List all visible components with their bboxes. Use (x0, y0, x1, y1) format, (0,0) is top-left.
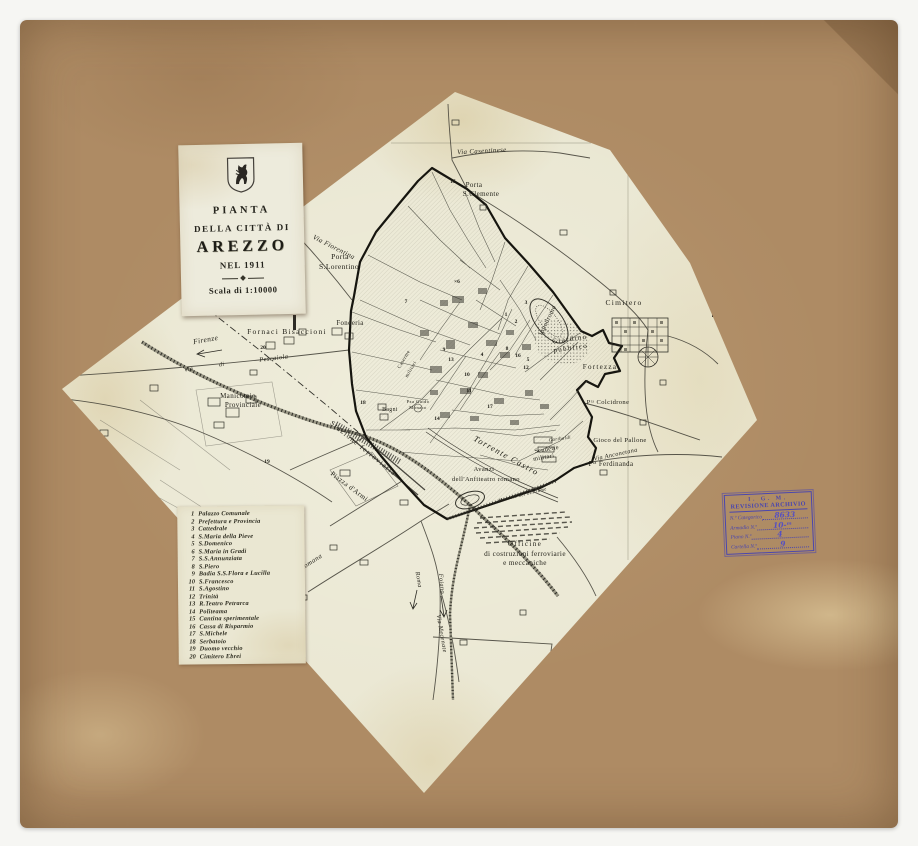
legend-item-number: 12 (182, 593, 195, 601)
legend-item-number: 6 (182, 548, 195, 556)
map-title-line1: PIANTA (213, 204, 271, 216)
map-marker-number: 14 (434, 416, 440, 422)
map-marker-number: 5 (527, 357, 530, 363)
legend-item-number: 8 (182, 563, 195, 571)
map-label: Pᵗᵃ Colcidrone (587, 399, 630, 406)
map-label: di costruzioni ferroviarie (484, 550, 566, 558)
stamp-field-value: 10-ᵐ (773, 520, 792, 530)
map-label: Officine (508, 540, 542, 548)
map-label: Bagni (382, 407, 398, 413)
coat-of-arms-shield (225, 157, 256, 194)
map-label: Porta (466, 181, 483, 189)
map-label: Via Casentinese (457, 147, 507, 157)
legend-item: 20Cimitero Ebrei (183, 652, 302, 661)
map-marker-number: 1 (505, 312, 508, 318)
map-marker-number: ×6 (454, 279, 460, 285)
map-marker-number: 15 (450, 179, 456, 185)
map-label: S.Lorentino (319, 262, 359, 271)
map-label: Fonderia (336, 320, 363, 327)
legend-item-number: 14 (182, 608, 195, 616)
divider-ornament (222, 276, 264, 281)
map-label: Pza Guido (407, 399, 430, 404)
map-label: Piazza d'Armi (329, 470, 370, 503)
legend-item-number: 5 (182, 540, 195, 548)
map-marker-number: 3 (525, 300, 528, 306)
legend-item-name: S.S.Annunziata (199, 555, 242, 563)
map-marker-number: 12 (523, 365, 529, 371)
legend-item-number: 10 (182, 578, 195, 586)
map-label: Gioco del Pallone (593, 437, 646, 444)
stamp-field-value: 4 (777, 530, 783, 539)
map-title-city: AREZZO (196, 237, 288, 257)
stamp-field-label: Piano N.º (730, 534, 751, 541)
map-label: Porta (331, 252, 349, 261)
legend-item-name: Prefettura e Provincia (198, 517, 260, 525)
legend-item-number: 17 (182, 630, 195, 638)
legend-item-number: 7 (182, 555, 195, 563)
archival-map-photo: Via CasentinesePortaS.ClementeVia Fioren… (0, 0, 918, 846)
map-label: Monaco (409, 405, 427, 410)
stamp-field-value: 8633 (774, 510, 795, 520)
legend-item-name: S.Agostino (199, 585, 229, 593)
map-label: di (219, 362, 225, 369)
legend-item-number: 16 (182, 623, 195, 631)
map-marker-number: 20 (260, 345, 266, 351)
archive-stamp: I. G. M. REVISIONE ARCHIVIO N.º Categori… (724, 491, 815, 555)
stamp-field-value: 9 (780, 539, 786, 548)
legend-item-number: 3 (181, 525, 194, 533)
map-label: Fortezza (583, 363, 618, 371)
legend-item-number: 1 (181, 510, 194, 518)
map-label: Pᵗᵃ Ferdinanda (589, 461, 634, 468)
map-marker-number: 17 (487, 404, 493, 410)
map-label: Pescaiola (258, 353, 289, 364)
legend-item-number: 19 (183, 645, 196, 653)
map-marker-number: 10 (464, 372, 470, 378)
map-scale: Scala di 1:10000 (209, 284, 278, 295)
map-label: Firenze (191, 333, 219, 347)
map-label: Foiano (437, 572, 446, 594)
legend-item-number: 15 (182, 615, 195, 623)
legend-item-number: 9 (182, 570, 195, 578)
map-marker-number: 11 (466, 388, 471, 394)
legend-item-name: Badia S.S.Flora e Lucilla (199, 570, 270, 578)
legend-item-number: 4 (181, 533, 194, 541)
map-title-line2: DELLA CITTÀ DI (194, 222, 290, 234)
legend-item-number: 11 (182, 585, 195, 593)
map-marker-number: 19 (264, 459, 270, 465)
map-marker-number: 2 (515, 319, 518, 325)
map-marker-number: 16 (515, 353, 521, 359)
title-card: PIANTA DELLA CITTÀ DI AREZZO NEL 1911 Sc… (178, 143, 306, 317)
map-title-year: NEL 1911 (220, 260, 266, 271)
legend-item-number: 2 (181, 518, 194, 526)
map-marker-number: 7 (405, 299, 408, 305)
stamp-field-label: Cartella N.º (731, 543, 757, 550)
cemetery (612, 318, 668, 367)
stamp-rows: N.º Categorico8633Armadio N.º10-ᵐPiano N… (730, 509, 810, 550)
map-label: Avanzi (474, 466, 495, 473)
map-label: e meccaniche (503, 559, 547, 567)
map-marker-number: 13 (448, 357, 454, 363)
map-label: Fornaci Bisaccioni (247, 327, 327, 336)
map-marker-number: 4 (481, 352, 484, 358)
map-label: Provinciale (225, 401, 261, 409)
legend-card: 1Palazzo Comunale2Prefettura e Provincia… (177, 505, 306, 664)
map-label: dell'Anfiteatro romano (452, 476, 520, 483)
legend-item-number: 13 (182, 600, 195, 608)
workshops-hatch (474, 512, 572, 543)
map-label: Manicomio (220, 392, 256, 400)
map-marker-number: 9 (443, 347, 446, 353)
map-label: Via Mecenate (435, 614, 449, 653)
map-label: Roma (413, 570, 423, 588)
legend-item-number: 18 (183, 638, 196, 646)
map-label: Cimitero (605, 298, 642, 307)
legend-item-name: Cimitero Ebrei (200, 653, 242, 661)
map-marker-number: 18 (360, 400, 366, 406)
map-marker-number: 8 (506, 346, 509, 352)
legend-item-number: 20 (183, 653, 196, 661)
map-label: S.Clemente (463, 190, 499, 198)
